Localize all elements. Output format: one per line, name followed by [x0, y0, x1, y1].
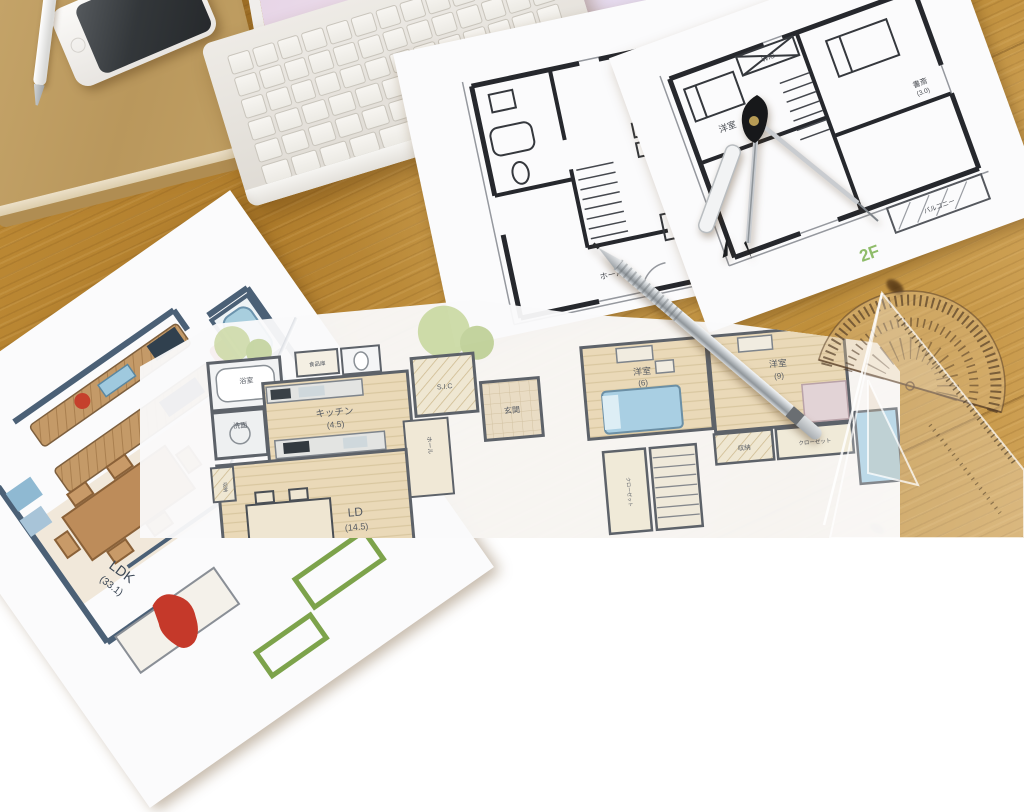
keyboard-key	[258, 64, 286, 90]
set-square-ruler	[810, 285, 1024, 538]
keyboard-key	[227, 49, 255, 75]
room-label: LD	[347, 504, 364, 519]
keyboard-key	[357, 34, 385, 60]
room-size: (14.5)	[344, 521, 368, 533]
keyboard-key	[375, 4, 403, 30]
room-label: 洋室	[768, 357, 787, 370]
keyboard-key	[289, 78, 317, 104]
room-label: WIC	[761, 53, 776, 64]
desk-photo: { "scene": { "setting": "hand-drawn hous…	[0, 0, 1024, 538]
keyboard-key	[431, 11, 459, 37]
room-label: 収納	[221, 482, 229, 493]
unit-1f	[202, 332, 553, 566]
keyboard-key	[455, 4, 483, 30]
keyboard-key	[314, 71, 342, 97]
phone-home-button	[68, 35, 88, 55]
keyboard-key	[350, 12, 378, 38]
room-size: (6)	[638, 378, 649, 388]
keyboard-key	[332, 41, 360, 67]
keyboard-key	[363, 56, 391, 82]
keyboard-key	[265, 86, 293, 112]
compass-needle-tip	[744, 241, 752, 259]
keyboard-key	[381, 26, 409, 52]
keyboard-key	[283, 56, 311, 82]
room-size: (4.5)	[326, 419, 344, 430]
keyboard-key	[406, 19, 434, 45]
tracing-sheet: 浴室 洗面 食品庫 キッチン (4.5) S.I.C 玄関 ホール LD (14…	[140, 300, 900, 538]
keyboard-key	[325, 19, 353, 45]
keyboard-key	[276, 34, 304, 60]
keyboard-key	[301, 27, 329, 53]
keyboard-key	[240, 93, 268, 119]
keyboard-key	[307, 49, 335, 75]
room-label: 玄関	[504, 404, 521, 415]
compass-barrel	[697, 143, 743, 235]
room-size: (3.0)	[916, 87, 931, 98]
green-window	[295, 531, 383, 607]
room-label: S.I.C	[437, 383, 453, 391]
green-window	[256, 615, 326, 676]
drafting-compass	[690, 85, 900, 275]
room-label: 洋室	[633, 365, 652, 378]
keyboard-key	[251, 42, 279, 68]
room-size: (9)	[774, 371, 785, 381]
keyboard-key	[233, 71, 261, 97]
keyboard-key	[339, 63, 367, 89]
